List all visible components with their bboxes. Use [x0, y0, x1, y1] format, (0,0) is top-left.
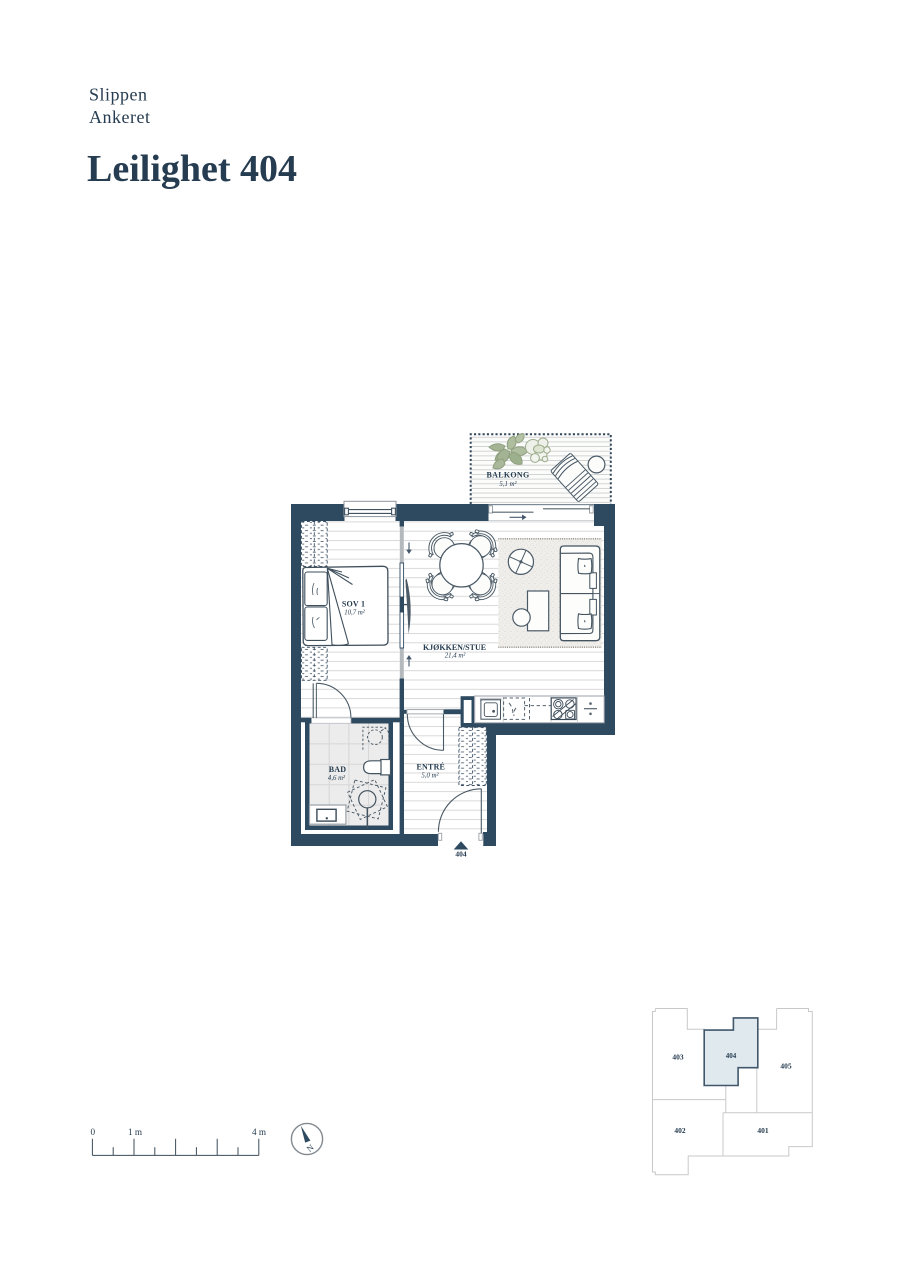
svg-text:0: 0	[91, 1127, 96, 1137]
svg-text:401: 401	[757, 1126, 769, 1135]
svg-text:403: 403	[672, 1053, 684, 1062]
svg-text:4,6 m²: 4,6 m²	[328, 775, 346, 782]
svg-text:5,1 m²: 5,1 m²	[499, 481, 517, 488]
svg-text:Ankeret: Ankeret	[89, 107, 150, 127]
svg-text:N: N	[304, 1142, 315, 1154]
svg-text:Slippen: Slippen	[89, 85, 148, 105]
svg-text:ENTRÉ: ENTRÉ	[417, 761, 446, 771]
svg-text:KJØKKEN/STUE: KJØKKEN/STUE	[423, 643, 486, 652]
svg-text:404: 404	[726, 1052, 737, 1060]
svg-text:21,4 m²: 21,4 m²	[445, 653, 467, 660]
svg-text:4 m: 4 m	[252, 1127, 266, 1137]
svg-text:SOV 1: SOV 1	[342, 600, 365, 609]
svg-text:BAD: BAD	[329, 765, 347, 774]
svg-text:BALKONG: BALKONG	[487, 471, 530, 480]
svg-text:405: 405	[780, 1062, 792, 1071]
svg-text:404: 404	[455, 850, 467, 859]
svg-text:402: 402	[674, 1126, 686, 1135]
svg-text:1 m: 1 m	[128, 1127, 142, 1137]
svg-text:5,0 m²: 5,0 m²	[421, 772, 439, 779]
svg-text:Leilighet 404: Leilighet 404	[87, 148, 297, 190]
svg-text:10,7 m²: 10,7 m²	[344, 609, 366, 616]
